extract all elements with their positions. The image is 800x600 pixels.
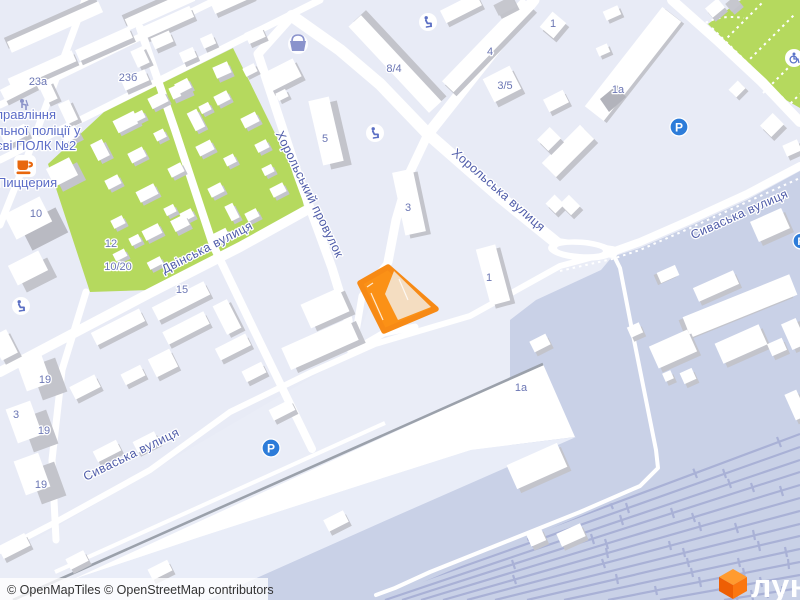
svg-text:8/4: 8/4 <box>386 63 401 75</box>
svg-text:правління: правління <box>0 107 56 122</box>
svg-text:1: 1 <box>486 272 492 284</box>
svg-text:Пиццерия: Пиццерия <box>0 175 57 190</box>
svg-text:5: 5 <box>322 133 328 145</box>
svg-text:12: 12 <box>105 238 117 250</box>
svg-text:23a: 23a <box>29 76 48 88</box>
svg-text:3/5: 3/5 <box>497 80 512 92</box>
svg-text:P: P <box>675 120 683 134</box>
svg-text:3: 3 <box>13 409 19 421</box>
svg-text:15: 15 <box>176 284 188 296</box>
svg-text:10/20: 10/20 <box>104 261 132 273</box>
svg-text:10: 10 <box>30 208 42 220</box>
svg-text:P: P <box>267 441 275 455</box>
svg-text:єві ПОЛК №2: єві ПОЛК №2 <box>0 138 76 153</box>
svg-text:19: 19 <box>38 425 50 437</box>
svg-text:1a: 1a <box>612 84 625 96</box>
svg-text:лун: лун <box>751 568 800 600</box>
svg-text:льної поліції у: льної поліції у <box>0 123 81 138</box>
svg-text:23б: 23б <box>119 72 138 84</box>
svg-text:4: 4 <box>487 46 493 58</box>
svg-text:© OpenMapTiles © OpenStreetMap: © OpenMapTiles © OpenStreetMap contribut… <box>7 583 274 597</box>
svg-text:1a: 1a <box>515 382 528 394</box>
svg-text:19: 19 <box>35 479 47 491</box>
svg-text:3: 3 <box>405 202 411 214</box>
svg-text:19: 19 <box>39 374 51 386</box>
svg-text:1: 1 <box>550 18 556 30</box>
